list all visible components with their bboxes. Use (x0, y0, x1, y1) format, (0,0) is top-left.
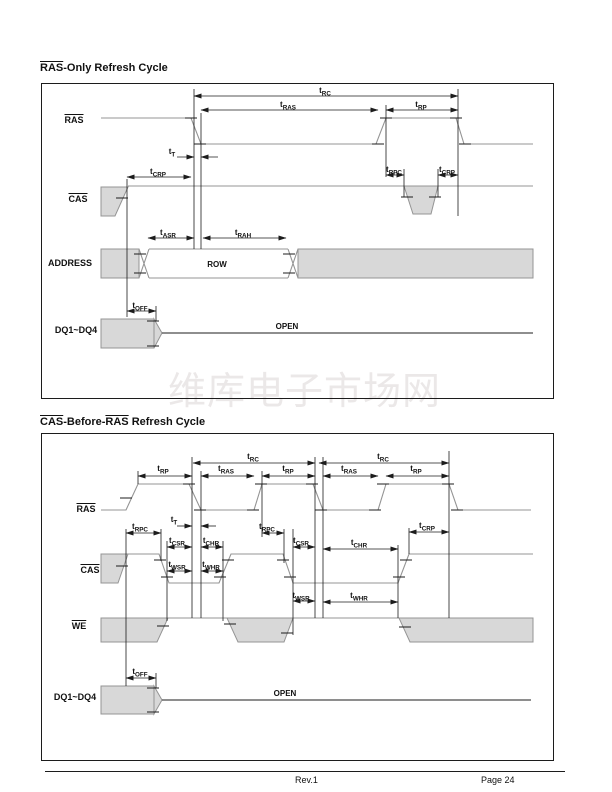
datasheet-page: 维库电子市场网 RAS-Only Refresh Cycle (0, 0, 612, 792)
section1-title: RAS-Only Refresh Cycle (40, 62, 168, 74)
d2-label-twhr2: tWHR (350, 591, 368, 603)
d2-label-tcrp: tCRP (419, 521, 435, 533)
d2-label-trc1: tRC (247, 452, 259, 464)
d1-dimension-arrows (127, 96, 458, 311)
section2-title-ras: RAS (105, 416, 128, 428)
d1-cas-waveform (101, 186, 533, 216)
section1-diagram-box (41, 83, 554, 399)
d2-label-trpc1: tRPC (132, 522, 148, 534)
d1-label-toff: tOFF (132, 301, 147, 313)
d1-reference-lines (127, 89, 458, 321)
d1-bus-row: ROW (207, 260, 227, 269)
d1-signal-ras: RAS (64, 115, 83, 125)
d2-label-toff: tOFF (132, 667, 147, 679)
d2-label-twsr2: tWSR (292, 591, 309, 603)
d2-label-tcsr2: tCSR (293, 536, 309, 548)
d2-signal-ras: RAS (76, 504, 95, 514)
d1-label-trah: tRAH (235, 228, 251, 240)
d2-label-tras2: tRAS (341, 464, 357, 476)
d1-address-waveform (101, 249, 533, 278)
section2-title: CAS-Before-RAS Refresh Cycle (40, 416, 205, 428)
d2-label-tcsr1: tCSR (169, 536, 185, 548)
d2-cas-waveform (101, 554, 533, 583)
d1-label-trpc: tRPC (386, 165, 402, 177)
d2-label-trp3: tRP (410, 464, 421, 476)
section2-title-cas: CAS (40, 416, 63, 428)
d1-ras-waveform (101, 118, 533, 144)
d1-label-trp: tRP (415, 100, 426, 112)
d1-label-trc: tRC (319, 86, 331, 98)
d2-signal-we: WE (72, 621, 87, 631)
d1-label-tcrp-left: tCRP (150, 167, 166, 179)
section1-title-rest: -Only Refresh Cycle (63, 62, 168, 74)
d2-ras-waveform (101, 484, 531, 510)
d2-signal-dq: DQ1~DQ4 (54, 692, 96, 702)
d2-label-tt: tT (171, 515, 178, 527)
d2-label-tras1: tRAS (218, 464, 234, 476)
d1-signal-cas: CAS (68, 194, 87, 204)
d1-dq-waveform (101, 319, 533, 348)
d2-label-twsr1: tWSR (168, 560, 185, 572)
section1-title-ras: RAS (40, 62, 63, 74)
d1-signal-dq: DQ1~DQ4 (55, 325, 97, 335)
d2-signal-cas: CAS (80, 565, 99, 575)
d2-label-twhr1: tWHR (202, 560, 220, 572)
section2-title-rest: Refresh Cycle (129, 416, 205, 428)
d2-label-trp1: tRP (157, 464, 168, 476)
d1-signal-address: ADDRESS (48, 258, 92, 268)
d2-tick-marks (116, 484, 463, 712)
d2-label-trpc2: tRPC (259, 522, 275, 534)
section2-title-mid: -Before- (63, 416, 105, 428)
footer-page-number: Page 24 (481, 775, 515, 785)
d2-label-tchr1: tCHR (203, 536, 219, 548)
d2-label-tchr2: tCHR (351, 538, 367, 550)
section1-timing-diagram (42, 84, 553, 398)
d1-label-tasr: tASR (160, 228, 176, 240)
d1-label-tcrp-right: tCRP (439, 165, 455, 177)
d2-we-waveform (101, 618, 533, 642)
d2-dq-waveform (101, 686, 531, 714)
d1-label-tt: tT (169, 147, 176, 159)
footer-revision: Rev.1 (295, 775, 318, 785)
footer-divider (45, 771, 565, 772)
d2-label-trp2: tRP (282, 464, 293, 476)
d2-bus-open: OPEN (274, 689, 297, 698)
d2-label-trc2: tRC (377, 452, 389, 464)
d1-label-tras: tRAS (280, 100, 296, 112)
d1-bus-open: OPEN (276, 322, 299, 331)
